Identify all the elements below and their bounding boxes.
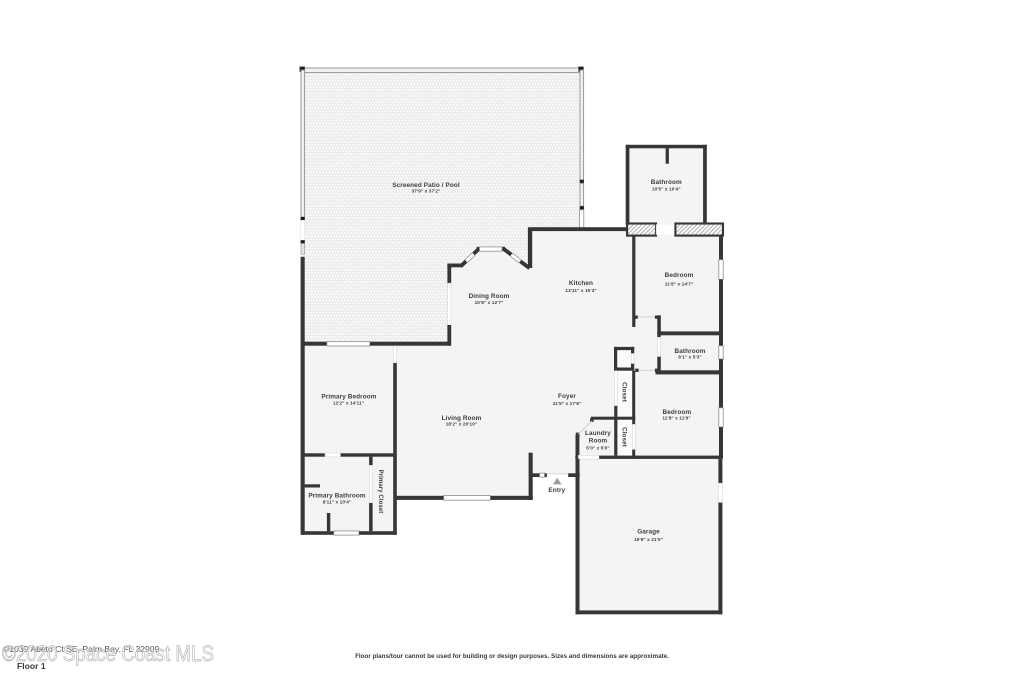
svg-text:Closet: Closet <box>621 382 628 403</box>
svg-text:11'5" x 17'8": 11'5" x 17'8" <box>553 401 582 406</box>
svg-text:13'11" x 15'3": 13'11" x 15'3" <box>565 288 596 293</box>
svg-text:10'5" x 10'4": 10'5" x 10'4" <box>652 187 681 192</box>
svg-text:Bathroom: Bathroom <box>651 179 682 186</box>
svg-text:8'1" x 5'3": 8'1" x 5'3" <box>678 354 701 359</box>
svg-text:18'2" x 20'10": 18'2" x 20'10" <box>446 421 478 426</box>
svg-text:19'6" x 21'0": 19'6" x 21'0" <box>634 537 663 542</box>
svg-text:5'0" x 5'0": 5'0" x 5'0" <box>586 445 609 450</box>
svg-text:Primary Bedroom: Primary Bedroom <box>321 393 376 400</box>
svg-text:11'8" x 11'9": 11'8" x 11'9" <box>662 416 690 421</box>
svg-text:Bedroom: Bedroom <box>665 272 694 279</box>
svg-text:Primary Closet: Primary Closet <box>377 470 383 514</box>
svg-text:37'9" x 37'2": 37'9" x 37'2" <box>412 189 441 194</box>
svg-text:Entry: Entry <box>548 487 565 494</box>
svg-text:Garage: Garage <box>637 529 660 536</box>
svg-text:Closet: Closet <box>621 427 628 448</box>
svg-text:12'2" x 14'11": 12'2" x 14'11" <box>333 400 364 405</box>
svg-text:Foyer: Foyer <box>558 393 576 400</box>
svg-text:Room: Room <box>589 438 608 445</box>
svg-text:10'8" x 12'7": 10'8" x 12'7" <box>475 300 504 305</box>
svg-text:8'11" x 10'4": 8'11" x 10'4" <box>323 499 352 504</box>
svg-text:Dining Room: Dining Room <box>469 293 510 300</box>
svg-text:Laundry: Laundry <box>585 430 611 437</box>
svg-text:Kitchen: Kitchen <box>569 280 593 287</box>
svg-text:11'8" x 14'7": 11'8" x 14'7" <box>665 282 694 287</box>
